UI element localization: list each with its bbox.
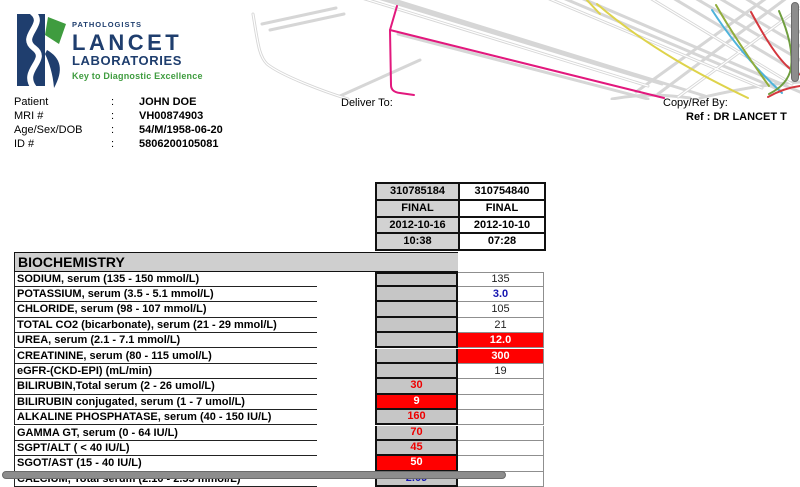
patient-field-label: Age/Sex/DOB — [14, 124, 111, 138]
deliver-to-label: Deliver To: — [341, 97, 393, 109]
result-test-name: TOTAL CO2 (bicarbonate), serum (21 - 29 … — [14, 318, 317, 333]
result-value-col2: 3.0 — [458, 287, 544, 302]
result-test-name: BILIRUBIN,Total serum (2 - 26 umol/L) — [14, 379, 317, 394]
logo-tagline: Key to Diagnostic Excellence — [72, 71, 222, 81]
referring-doctor-value: Ref : DR LANCET T — [686, 111, 787, 123]
sample-id-col2: 310754840 — [459, 183, 545, 200]
horizontal-scrollbar-thumb[interactable] — [2, 471, 506, 479]
patient-field-label: ID # — [14, 138, 111, 152]
result-row: SODIUM, serum (135 - 150 mmol/L) 135 — [14, 272, 544, 287]
sample-time-col1: 10:38 — [376, 233, 459, 250]
patient-field-label: MRI # — [14, 110, 111, 124]
logo-laboratories-label: LABORATORIES — [72, 54, 222, 67]
result-row: ALKALINE PHOSPHATASE, serum (40 - 150 IU… — [14, 410, 544, 425]
result-value-col2: 21 — [458, 318, 544, 333]
result-value-col1: 70 — [375, 426, 458, 441]
result-value-col2 — [458, 395, 544, 410]
patient-info-block: Patient : JOHN DOE MRI # : VH00874903 Ag… — [14, 96, 223, 152]
result-value-col2: 19 — [458, 364, 544, 379]
patient-field-colon: : — [111, 124, 139, 138]
result-test-name: ALKALINE PHOSPHATASE, serum (40 - 150 IU… — [14, 410, 317, 425]
result-value-col2 — [458, 426, 544, 441]
result-row: BILIRUBIN conjugated, serum (1 - 7 umol/… — [14, 395, 544, 410]
result-row: GAMMA GT, serum (0 - 64 IU/L) 70 — [14, 426, 544, 441]
results-table: BIOCHEMISTRY SODIUM, serum (135 - 150 mm… — [0, 252, 800, 486]
vertical-scrollbar-thumb[interactable] — [791, 2, 799, 82]
background-map-graphic — [240, 0, 800, 100]
patient-field-colon: : — [111, 110, 139, 124]
patient-field-colon: : — [111, 138, 139, 152]
result-value-col1 — [375, 302, 458, 317]
result-value-col2: 135 — [458, 272, 544, 287]
patient-field-value: JOHN DOE — [139, 96, 196, 110]
lancet-logo-icon — [12, 12, 70, 90]
patient-info-row: ID # : 5806200105081 — [14, 138, 223, 152]
result-value-col1 — [375, 287, 458, 302]
sample-date-col2: 2012-10-10 — [459, 217, 545, 234]
result-row: TOTAL CO2 (bicarbonate), serum (21 - 29 … — [14, 318, 544, 333]
result-value-col1: 30 — [375, 379, 458, 394]
result-value-col2: 105 — [458, 302, 544, 317]
result-row: UREA, serum (2.1 - 7.1 mmol/L) 12.0 — [14, 333, 544, 348]
logo-name: LANCET — [72, 33, 222, 53]
copy-ref-by-label: Copy/Ref By: — [663, 97, 728, 109]
sample-date-col1: 2012-10-16 — [376, 217, 459, 234]
result-row: CREATININE, serum (80 - 115 umol/L) 300 — [14, 349, 544, 364]
result-test-name: POTASSIUM, serum (3.5 - 5.1 mmol/L) — [14, 287, 317, 302]
sample-id-col1: 310785184 — [376, 183, 459, 200]
result-value-col1 — [375, 318, 458, 333]
result-value-col2 — [458, 410, 544, 425]
sample-status-col2: FINAL — [459, 200, 545, 217]
result-row: BILIRUBIN,Total serum (2 - 26 umol/L) 30 — [14, 379, 544, 394]
result-test-name: SGOT/AST (15 - 40 IU/L) — [14, 456, 317, 471]
result-row: eGFR-(CKD-EPI) (mL/min) 19 — [14, 364, 544, 379]
result-row: SGPT/ALT ( < 40 IU/L) 45 — [14, 441, 544, 456]
result-value-col1: 160 — [375, 410, 458, 425]
patient-field-value: 54/M/1958-06-20 — [139, 124, 223, 138]
logo-pathologists-label: PATHOLOGISTS — [72, 20, 222, 29]
result-test-name: CREATININE, serum (80 - 115 umol/L) — [14, 349, 317, 364]
result-test-name: UREA, serum (2.1 - 7.1 mmol/L) — [14, 333, 317, 348]
result-value-col1 — [375, 333, 458, 348]
result-value-col1 — [375, 349, 458, 364]
result-value-col2 — [458, 456, 544, 471]
result-row: CHLORIDE, serum (98 - 107 mmol/L) 105 — [14, 302, 544, 317]
sample-status-col1: FINAL — [376, 200, 459, 217]
result-test-name: SGPT/ALT ( < 40 IU/L) — [14, 441, 317, 456]
patient-info-row: MRI # : VH00874903 — [14, 110, 223, 124]
patient-info-row: Patient : JOHN DOE — [14, 96, 223, 110]
sample-time-col2: 07:28 — [459, 233, 545, 250]
result-value-col1 — [375, 364, 458, 379]
result-test-name: BILIRUBIN conjugated, serum (1 - 7 umol/… — [14, 395, 317, 410]
patient-field-colon: : — [111, 96, 139, 110]
patient-field-value: VH00874903 — [139, 110, 203, 124]
result-test-name: SODIUM, serum (135 - 150 mmol/L) — [14, 272, 317, 287]
result-test-name: GAMMA GT, serum (0 - 64 IU/L) — [14, 426, 317, 441]
result-value-col2 — [458, 379, 544, 394]
result-value-col1: 9 — [375, 395, 458, 410]
logo-text: PATHOLOGISTS LANCET LABORATORIES Key to … — [72, 20, 222, 81]
result-test-name: eGFR-(CKD-EPI) (mL/min) — [14, 364, 317, 379]
results-header-table: 310785184 310754840 FINAL FINAL 2012-10-… — [375, 182, 546, 251]
patient-field-value: 5806200105081 — [139, 138, 219, 152]
result-row: POTASSIUM, serum (3.5 - 5.1 mmol/L) 3.0 — [14, 287, 544, 302]
patient-field-label: Patient — [14, 96, 111, 110]
result-value-col1 — [375, 272, 458, 287]
result-value-col1: 45 — [375, 441, 458, 456]
patient-info-row: Age/Sex/DOB : 54/M/1958-06-20 — [14, 124, 223, 138]
result-value-col2: 300 — [458, 349, 544, 364]
section-title: BIOCHEMISTRY — [14, 252, 458, 272]
result-test-name: CHLORIDE, serum (98 - 107 mmol/L) — [14, 302, 317, 317]
result-row: SGOT/AST (15 - 40 IU/L) 50 — [14, 456, 544, 471]
result-value-col2 — [458, 441, 544, 456]
result-value-col2: 12.0 — [458, 333, 544, 348]
result-value-col1: 50 — [375, 456, 458, 471]
